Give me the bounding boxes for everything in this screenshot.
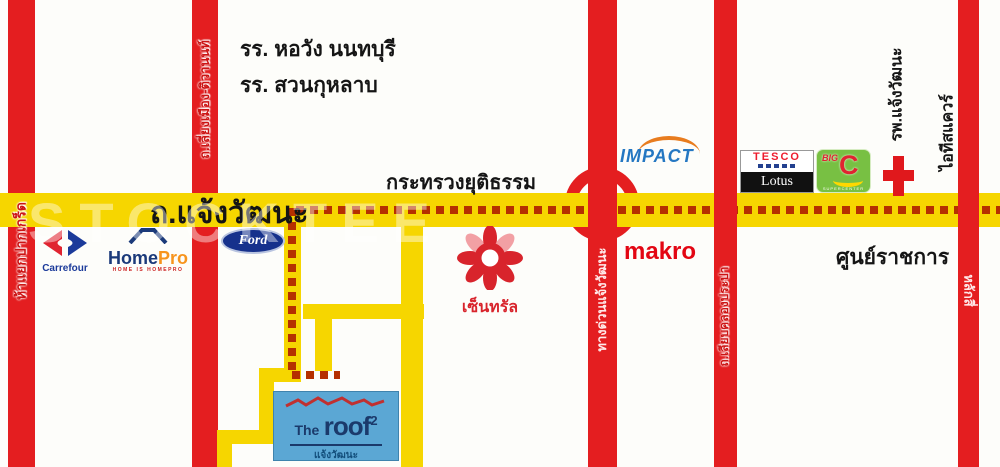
roof-label-sup: 2 xyxy=(370,413,377,428)
makro-logo: makro xyxy=(624,238,696,266)
road-label-liang-mueang: ถ.เลี่ยงเมือง-ติวานนท์ xyxy=(194,7,215,192)
central-label: เซ็นทรัล xyxy=(452,295,528,320)
tesco-squares-icon xyxy=(758,164,796,168)
roof-sub-label: แจ้งวัฒนะ xyxy=(274,448,398,463)
roof-zigzag-icon xyxy=(284,396,388,408)
watermark: STOCKTEE xyxy=(28,190,444,255)
route-dashed-line xyxy=(292,371,340,379)
map: ถ.แจ้งวัฒนะ ห้าแยกปากเกร็ด ถ.เลี่ยงเมือง… xyxy=(0,0,1000,467)
carrefour-label: Carrefour xyxy=(36,263,94,274)
road-label-laksi: หลักสี่ xyxy=(959,252,980,330)
lotus-label: Lotus xyxy=(741,172,813,192)
bigc-sub-label: SUPERCENTER xyxy=(817,186,870,191)
road-label-khlong-prapa: ถ.เลียบคลองประปา xyxy=(715,234,734,399)
roof-underline xyxy=(290,444,382,446)
hospital-cross-icon xyxy=(883,156,914,196)
soi-segment xyxy=(315,304,332,371)
label-hospital: รพ.แจ้งวัฒนะ xyxy=(885,30,910,160)
roof-label-roof: roof xyxy=(324,411,371,441)
label-school-suankularb: รร. สวนกุหลาบ xyxy=(240,69,378,102)
bigc-label-big: BIG xyxy=(822,153,838,163)
soi-segment xyxy=(401,227,423,467)
road-label-tollway: ทางด่วนแจ้งวัฒนะ xyxy=(591,222,612,377)
the-roof-logo: The roof2 แจ้งวัฒนะ xyxy=(273,391,399,461)
soi-segment xyxy=(217,430,232,467)
central-flower-icon xyxy=(453,226,527,290)
impact-label: IMPACT xyxy=(620,146,694,167)
label-it-square: ไอทีสแควร์ xyxy=(936,73,961,193)
homepro-tagline: HOME IS HOMEPRO xyxy=(99,267,197,273)
big-c-logo: BIG C SUPERCENTER xyxy=(816,149,871,193)
roof-label-the: The xyxy=(294,422,319,438)
label-school-horwang: รร. หอวัง นนทบุรี xyxy=(240,33,396,66)
label-government-center: ศูนย์ราชการ xyxy=(836,241,949,274)
tesco-label: TESCO xyxy=(741,151,813,164)
road-laksi xyxy=(958,0,979,467)
tesco-lotus-logo: TESCO Lotus xyxy=(740,150,814,193)
central-logo: เซ็นทรัล xyxy=(452,226,528,320)
impact-logo: IMPACT xyxy=(620,136,720,170)
